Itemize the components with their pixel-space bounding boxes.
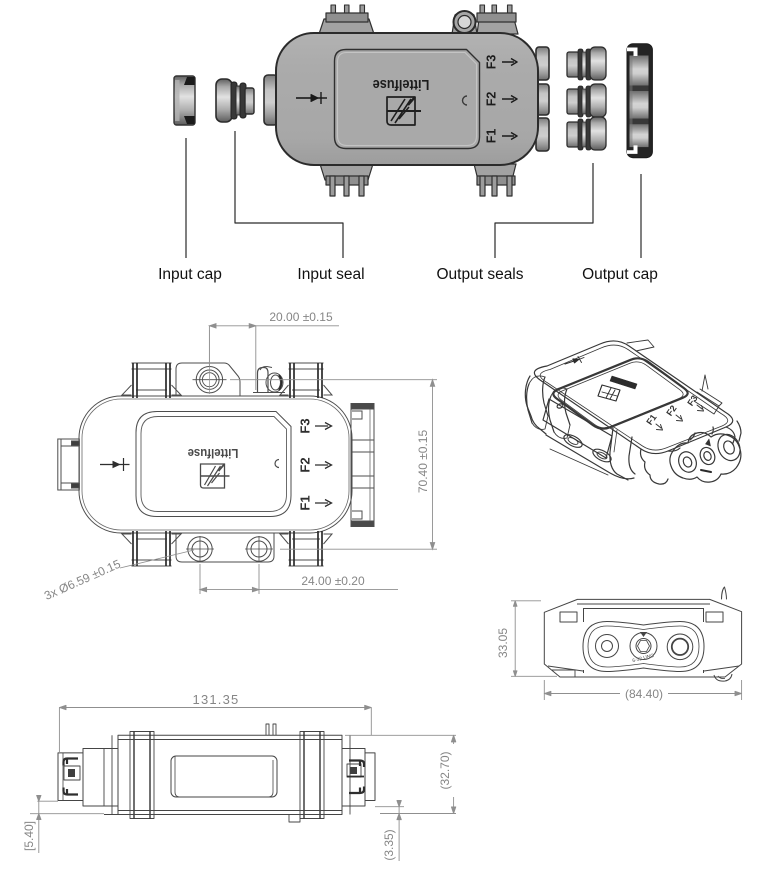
svg-text:Littelfuse: Littelfuse (187, 446, 238, 461)
svg-text:(3.35): (3.35) (382, 829, 396, 860)
svg-text:F3: F3 (297, 418, 312, 433)
svg-text:F3: F3 (484, 55, 498, 70)
svg-text:F1: F1 (484, 129, 498, 144)
svg-text:Littelfuse: Littelfuse (372, 77, 429, 93)
svg-text:70.40 ±0.15: 70.40 ±0.15 (416, 430, 430, 494)
svg-text:33.05: 33.05 (496, 628, 510, 658)
svg-text:20.00 ±0.15: 20.00 ±0.15 (269, 310, 333, 324)
svg-text:(32.70): (32.70) (438, 751, 452, 789)
svg-text:Output cap: Output cap (582, 266, 658, 283)
svg-text:F2: F2 (484, 92, 498, 107)
svg-text:[5.40]: [5.40] (22, 821, 36, 851)
svg-text:(84.40): (84.40) (625, 687, 663, 701)
svg-text:Output seals: Output seals (436, 266, 523, 283)
svg-text:Input seal: Input seal (297, 266, 364, 283)
svg-text:F1: F1 (297, 495, 312, 510)
svg-text:131.35: 131.35 (193, 692, 240, 707)
svg-text:24.00 ±0.20: 24.00 ±0.20 (301, 574, 365, 588)
svg-text:Input cap: Input cap (158, 266, 222, 283)
svg-text:F2: F2 (297, 457, 312, 472)
